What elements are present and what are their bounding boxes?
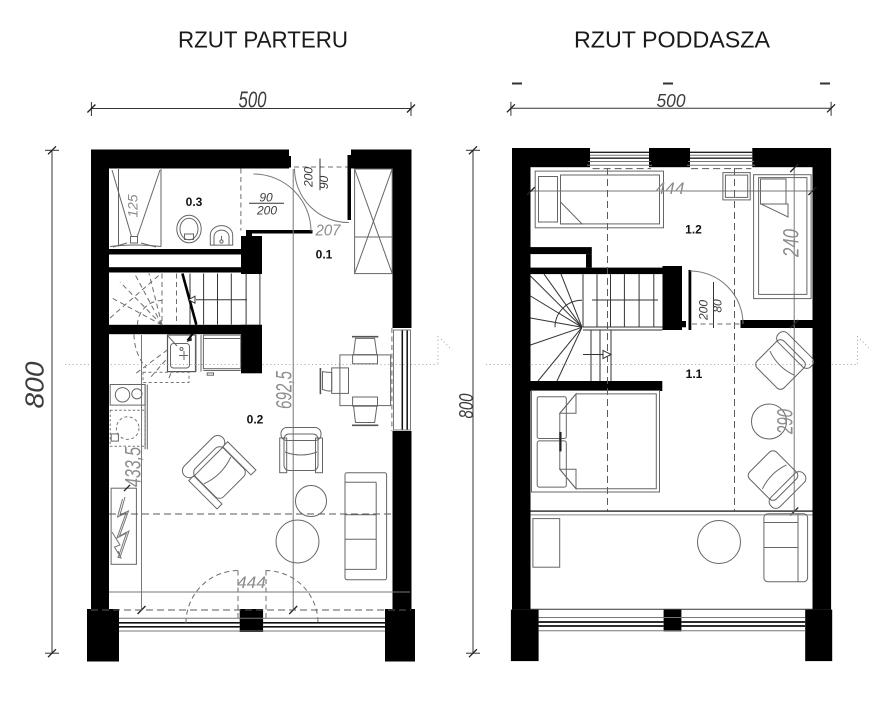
svg-text:1.2: 1.2 xyxy=(685,223,702,237)
svg-text:90: 90 xyxy=(317,176,331,190)
svg-text:200: 200 xyxy=(302,167,316,188)
svg-text:0.1: 0.1 xyxy=(316,248,333,262)
svg-text:290: 290 xyxy=(773,408,798,434)
svg-text:207: 207 xyxy=(315,223,342,240)
svg-text:433,5: 433,5 xyxy=(121,446,146,487)
svg-text:240: 240 xyxy=(779,228,804,257)
svg-text:1.1: 1.1 xyxy=(686,367,703,381)
svg-text:0.3: 0.3 xyxy=(186,195,203,209)
svg-text:444: 444 xyxy=(656,179,685,198)
svg-text:800: 800 xyxy=(20,361,50,409)
svg-text:0.2: 0.2 xyxy=(247,413,264,427)
svg-text:692,5: 692,5 xyxy=(272,370,297,409)
svg-text:500: 500 xyxy=(239,87,267,113)
svg-text:200: 200 xyxy=(256,204,277,218)
svg-text:125: 125 xyxy=(125,194,141,217)
svg-text:80: 80 xyxy=(711,299,725,313)
svg-text:200: 200 xyxy=(697,300,711,321)
svg-text:RZUT PARTERU: RZUT PARTERU xyxy=(178,27,348,53)
svg-text:444: 444 xyxy=(237,573,266,592)
svg-text:800: 800 xyxy=(456,394,478,419)
svg-text:500: 500 xyxy=(657,90,687,111)
svg-text:RZUT PODDASZA: RZUT PODDASZA xyxy=(574,27,771,53)
svg-text:90: 90 xyxy=(259,191,273,205)
